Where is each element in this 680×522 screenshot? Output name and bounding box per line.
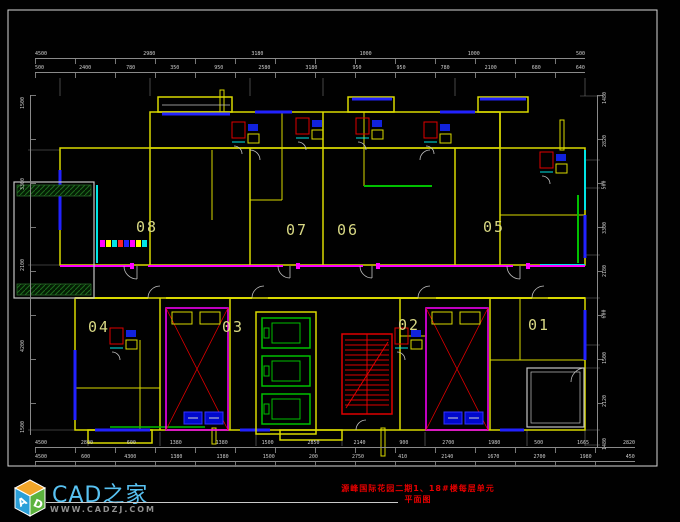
dim-value: 500	[534, 440, 543, 446]
dim-values-top-2: 5002400780350950258031809509507802100680…	[35, 65, 585, 71]
dim-value: 500	[602, 180, 608, 189]
dim-value: 600	[81, 454, 90, 460]
dim-value: 1500	[263, 454, 275, 460]
dim-value: 1480	[602, 92, 608, 104]
dim-value: 2580	[258, 65, 270, 71]
room-label-08: 08	[136, 218, 158, 236]
dim-value: 3180	[251, 51, 263, 57]
lower-units	[75, 298, 585, 456]
dim-value: 1380	[216, 440, 228, 446]
dim-value: 900	[399, 440, 408, 446]
dim-value: 500	[576, 51, 585, 57]
dim-value: 2100	[485, 65, 497, 71]
dim-value: 450	[626, 454, 635, 460]
plan-note-strip	[100, 240, 147, 247]
dim-value: 640	[576, 65, 585, 71]
dim-value: 600	[127, 440, 136, 446]
dim-values-left: 15003300210042001500	[18, 100, 28, 430]
room-label-06: 06	[337, 221, 359, 239]
dim-value: 3300	[602, 222, 608, 234]
dim-line-bottom-1	[35, 447, 635, 453]
dim-value: 2180	[602, 265, 608, 277]
dim-value: 4500	[35, 440, 47, 446]
dim-value: 1980	[488, 440, 500, 446]
dim-value: 2140	[353, 440, 365, 446]
dim-value: 2980	[143, 51, 155, 57]
dim-value: 2700	[442, 440, 454, 446]
dim-values-top-1: 45002980318010001000500	[35, 51, 585, 57]
dim-value: 1380	[170, 440, 182, 446]
dim-value: 1670	[487, 454, 499, 460]
dim-value: 780	[441, 65, 450, 71]
dim-value: 2100	[20, 259, 26, 271]
dim-value: 780	[126, 65, 135, 71]
dim-line-top-1	[35, 58, 585, 64]
logo-cube-icon: A D	[12, 479, 48, 519]
logo-underline	[46, 502, 398, 503]
dim-value: 1000	[360, 51, 372, 57]
dim-value: 2850	[308, 440, 320, 446]
dim-value: 1380	[217, 454, 229, 460]
dim-value: 1500	[20, 421, 26, 433]
dimension-extension-lines	[28, 78, 600, 446]
dim-values-bottom-1: 4500280060013801380150028502140900270019…	[35, 440, 635, 446]
right-balcony	[527, 368, 584, 427]
logo-site-url: WWW.CADZJ.COM	[50, 505, 156, 514]
dim-value: 500	[35, 65, 44, 71]
light-well-right	[426, 308, 488, 430]
room-label-05: 05	[483, 218, 505, 236]
cad-canvas: 45002980318010001000500 5002400780350950…	[0, 0, 680, 522]
dim-value: 950	[352, 65, 361, 71]
dim-value: 2820	[602, 135, 608, 147]
dim-value: 2400	[79, 65, 91, 71]
dim-value: 1500	[262, 440, 274, 446]
dim-value: 4500	[35, 454, 47, 460]
dim-value: 600	[602, 310, 608, 319]
dim-value: 950	[214, 65, 223, 71]
dim-line-bottom-2	[35, 461, 635, 467]
dim-value: 1980	[580, 454, 592, 460]
room-label-01: 01	[528, 316, 550, 334]
dim-value: 350	[170, 65, 179, 71]
dim-value: 680	[532, 65, 541, 71]
dim-values-bottom-2: 4500600430013801380150020027504102140167…	[35, 454, 635, 460]
dim-value: 2700	[534, 454, 546, 460]
dim-value: 3300	[20, 178, 26, 190]
dim-value: 2820	[623, 440, 635, 446]
door-arcs	[124, 150, 585, 430]
room-label-07: 07	[286, 221, 308, 239]
dim-value: 4200	[20, 340, 26, 352]
dim-value: 1665	[577, 440, 589, 446]
dim-value: 1480	[602, 438, 608, 450]
dim-value: 2140	[441, 454, 453, 460]
dim-value: 200	[309, 454, 318, 460]
room-label-02: 02	[398, 316, 420, 334]
elevators	[256, 312, 316, 434]
upper-units	[60, 90, 585, 265]
light-well-left	[166, 308, 228, 430]
dim-value: 2750	[352, 454, 364, 460]
dim-value: 1000	[468, 51, 480, 57]
dim-value: 950	[397, 65, 406, 71]
dim-line-left	[30, 95, 36, 435]
dim-line-top-2	[35, 72, 585, 78]
site-logo: A D CAD之家 WWW.CADZJ.COM	[12, 477, 412, 519]
staircase	[342, 334, 392, 414]
room-label-04: 04	[88, 318, 110, 336]
dim-value: 2120	[602, 395, 608, 407]
sheet-frame	[8, 10, 657, 466]
dim-value: 410	[398, 454, 407, 460]
dim-value: 1380	[170, 454, 182, 460]
dim-value: 1500	[602, 351, 608, 363]
room-label-03: 03	[222, 318, 244, 336]
dim-value: 3180	[305, 65, 317, 71]
dim-value: 4300	[124, 454, 136, 460]
dim-value: 1500	[20, 97, 26, 109]
dim-value: 2800	[81, 440, 93, 446]
dim-value: 4500	[35, 51, 47, 57]
dim-values-right: 1480282050033002180600150021201480	[600, 95, 610, 447]
corridor	[60, 263, 585, 298]
